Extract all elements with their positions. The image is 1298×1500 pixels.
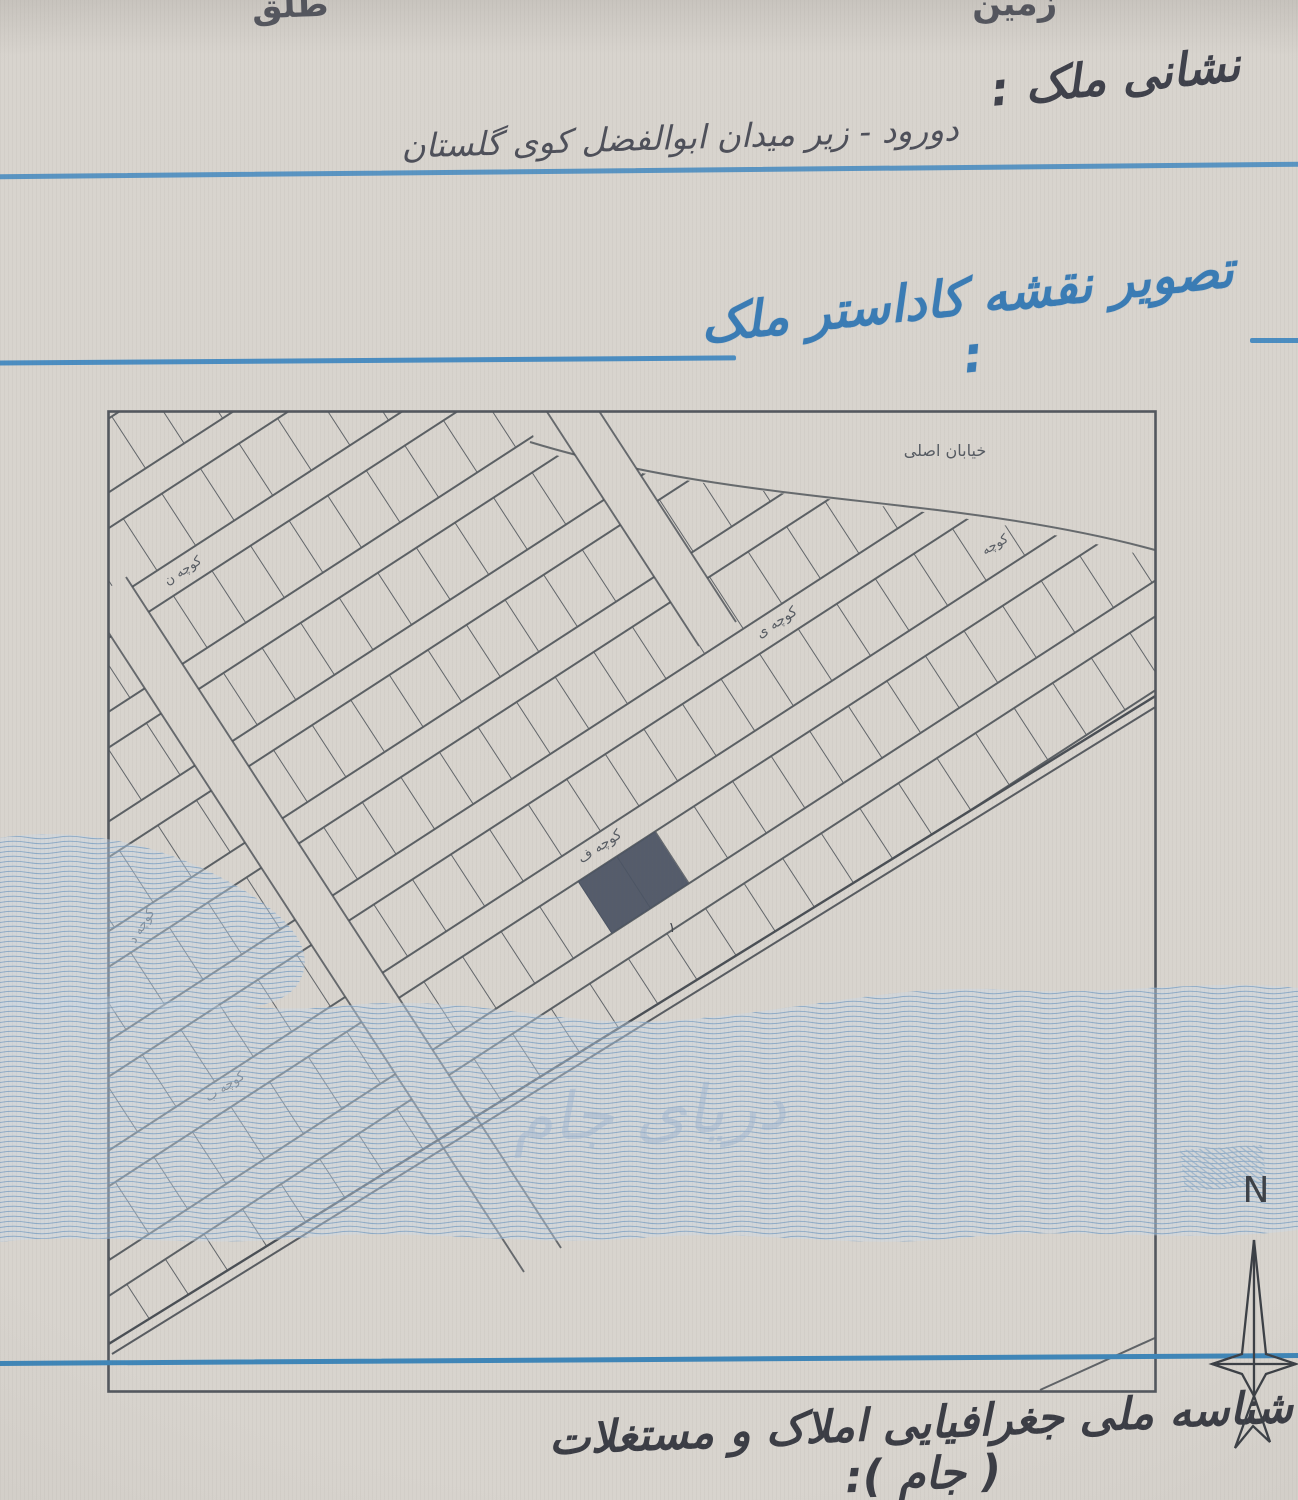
compass-north-label: N [1243, 1170, 1270, 1211]
map-section-heading: تصویر نقشه کاداستر ملک : [695, 240, 1244, 412]
compass-star [1212, 1240, 1296, 1448]
top-right-word: زمین [972, 0, 1058, 25]
footer-heading: شناسه ملی جغرافیایی املاک و مستغلات ( جا… [540, 1381, 1298, 1500]
scanned-property-document: { "page": { "corner_top_left": "طلق", "c… [0, 0, 1298, 1500]
heading-rule-right [1250, 338, 1298, 343]
heading-rule-left [0, 355, 736, 365]
parcel-number-label: ۱ [668, 920, 676, 936]
address-rule-line [0, 162, 1298, 179]
top-left-word: طلق [251, 0, 329, 27]
cadastral-map: خیابان اصلی کوچه کوچه ی کوچه ف کوچه ن کو… [107, 410, 1157, 1393]
corner-diagonal-line [1040, 1337, 1157, 1390]
address-heading: نشانی ملک : [987, 37, 1242, 117]
main-street-label: خیابان اصلی [904, 441, 986, 460]
compass-rose: N [1190, 1158, 1298, 1458]
address-value: دورود - زیر میدان ابوالفضل کوی گلستان [340, 107, 1021, 167]
